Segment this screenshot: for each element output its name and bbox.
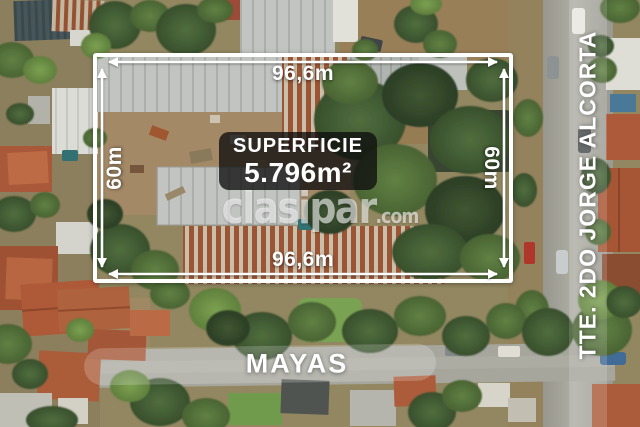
dimension-top: 96,6m	[97, 62, 509, 86]
area-label: SUPERFICIE	[233, 135, 363, 158]
listing-image: MAYAS TTE. 2DO JORGE ALCORTA 96,6m 96,6m…	[0, 0, 640, 427]
area-panel: SUPERFICIE 5.796m²	[219, 132, 377, 190]
area-value: 5.796m²	[244, 158, 352, 187]
dimension-right: 60m	[479, 146, 503, 190]
dimension-bottom: 96,6m	[97, 248, 509, 272]
street-label-alcorta: TTE. 2DO JORGE ALCORTA	[575, 31, 602, 360]
dimension-left: 60m	[103, 146, 127, 190]
street-label-mayas: MAYAS	[246, 349, 349, 380]
